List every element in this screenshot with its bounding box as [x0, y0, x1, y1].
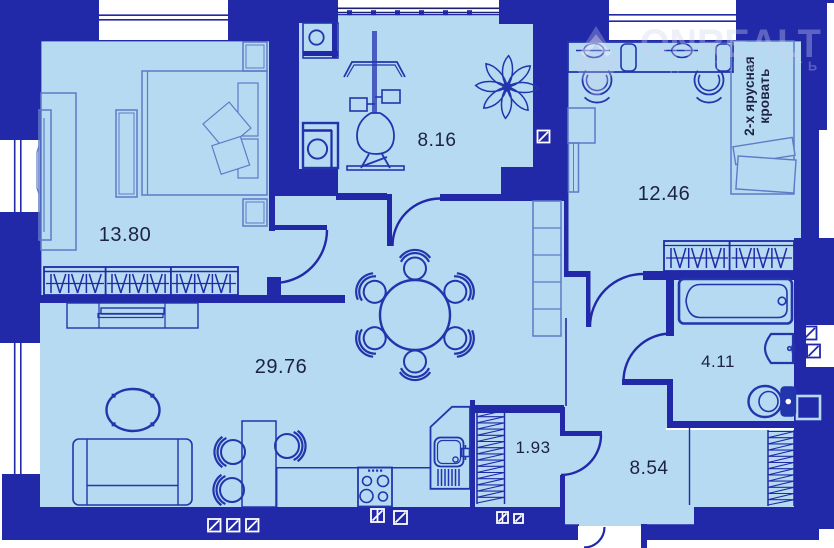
- svg-text:кровать: кровать: [757, 68, 772, 123]
- svg-text:12.46: 12.46: [638, 183, 691, 205]
- svg-text:НЕДВИЖИМОСТЬ: НЕДВИЖИМОСТЬ: [641, 60, 823, 74]
- svg-text:8.16: 8.16: [418, 130, 457, 151]
- svg-text:8.54: 8.54: [630, 458, 669, 479]
- svg-text:29.76: 29.76: [255, 356, 308, 378]
- svg-text:4.11: 4.11: [701, 352, 735, 371]
- svg-text:13.80: 13.80: [99, 224, 152, 246]
- svg-text:1.93: 1.93: [515, 438, 550, 457]
